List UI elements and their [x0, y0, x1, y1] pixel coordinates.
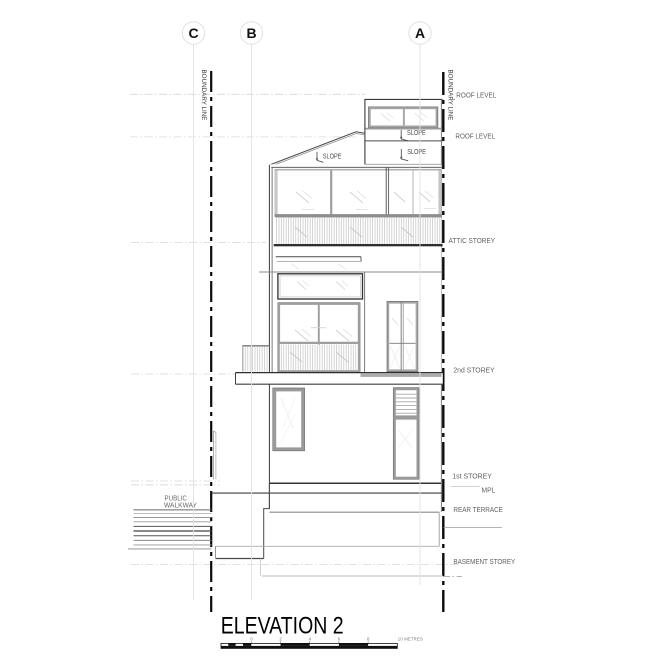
svg-text:ROOF LEVEL: ROOF LEVEL	[456, 92, 496, 99]
svg-text:BASEMENT STOREY: BASEMENT STOREY	[453, 559, 515, 566]
svg-text:BOUNDARY LINE: BOUNDARY LINE	[200, 70, 207, 121]
svg-text:SLOPE: SLOPE	[323, 151, 342, 160]
svg-text:C: C	[188, 25, 198, 41]
svg-text:SLOPE: SLOPE	[407, 147, 426, 156]
svg-text:B: B	[246, 25, 256, 41]
svg-text:ROOF LEVEL: ROOF LEVEL	[455, 133, 495, 140]
svg-text:WALKWAY: WALKWAY	[164, 503, 197, 510]
svg-text:ELEVATION 2: ELEVATION 2	[221, 612, 344, 639]
svg-text:BOUNDARY LINE: BOUNDARY LINE	[447, 70, 454, 121]
svg-text:PUBLIC: PUBLIC	[165, 495, 187, 502]
svg-text:REAR TERRACE: REAR TERRACE	[453, 507, 503, 514]
svg-text:2nd STOREY: 2nd STOREY	[453, 368, 495, 375]
svg-text:ATTIC STOREY: ATTIC STOREY	[449, 238, 496, 245]
svg-text:A: A	[415, 25, 425, 41]
svg-text:MPL: MPL	[482, 488, 496, 495]
svg-text:1st STOREY: 1st STOREY	[452, 474, 492, 481]
svg-text:10 METRES: 10 METRES	[398, 637, 423, 642]
svg-text:SLOPE: SLOPE	[407, 128, 426, 137]
